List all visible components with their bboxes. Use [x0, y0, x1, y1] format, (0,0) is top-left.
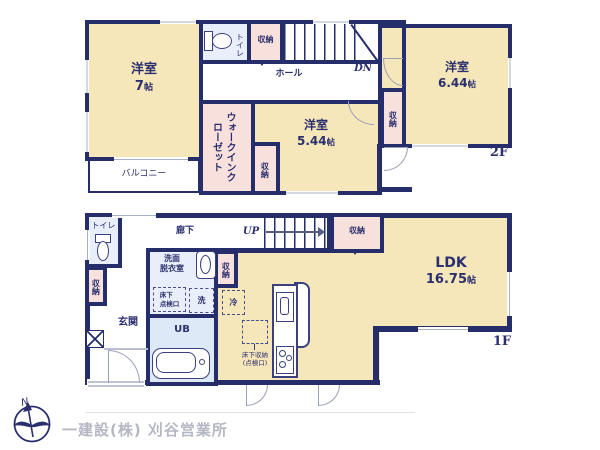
- floor-plan-page: 洋室 7帖 トイレ 収納 DN ホール ウォークインクローゼット 収納 洋室 5…: [0, 0, 600, 450]
- compass-north-label: N: [20, 396, 30, 409]
- compass-icon: N: [8, 396, 56, 446]
- company-name: 一建設(株) 刈谷営業所: [62, 419, 228, 440]
- footer: N 一建設(株) 刈谷営業所: [0, 0, 600, 450]
